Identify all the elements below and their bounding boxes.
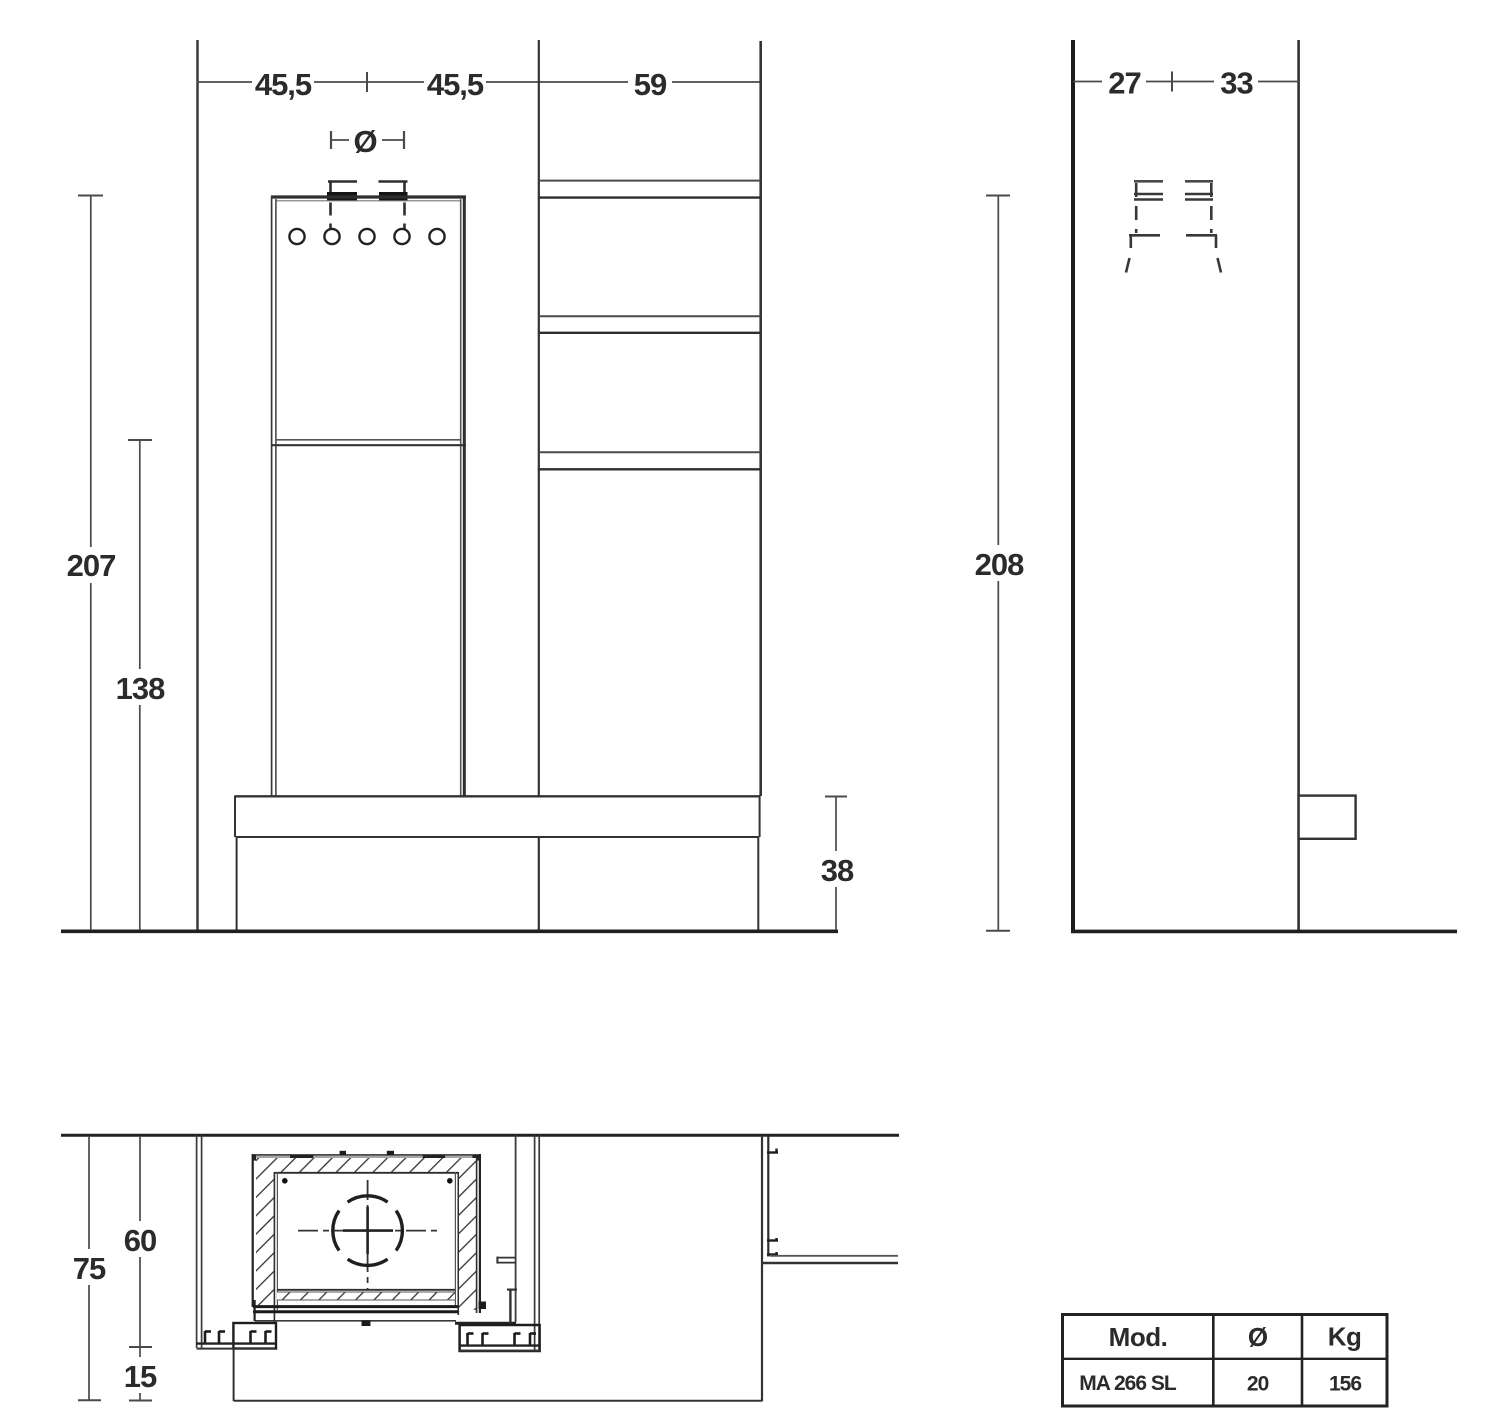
svg-text:20: 20	[1247, 1373, 1269, 1396]
svg-text:27: 27	[1108, 66, 1140, 101]
svg-text:Ø: Ø	[1248, 1322, 1268, 1352]
svg-text:59: 59	[634, 67, 667, 102]
svg-text:45,5: 45,5	[255, 67, 312, 102]
svg-text:60: 60	[124, 1223, 156, 1258]
svg-text:15: 15	[124, 1359, 157, 1394]
svg-text:33: 33	[1220, 66, 1253, 101]
svg-text:Kg: Kg	[1328, 1322, 1362, 1352]
svg-text:Mod.: Mod.	[1109, 1322, 1168, 1352]
svg-text:Ø: Ø	[353, 124, 376, 159]
svg-text:156: 156	[1329, 1373, 1361, 1396]
svg-text:138: 138	[116, 671, 165, 706]
svg-text:38: 38	[821, 853, 854, 888]
svg-text:MA 266 SL: MA 266 SL	[1079, 1372, 1177, 1395]
svg-text:207: 207	[67, 548, 116, 583]
svg-text:75: 75	[73, 1251, 106, 1286]
svg-text:208: 208	[975, 547, 1024, 582]
svg-text:45,5: 45,5	[427, 67, 484, 102]
